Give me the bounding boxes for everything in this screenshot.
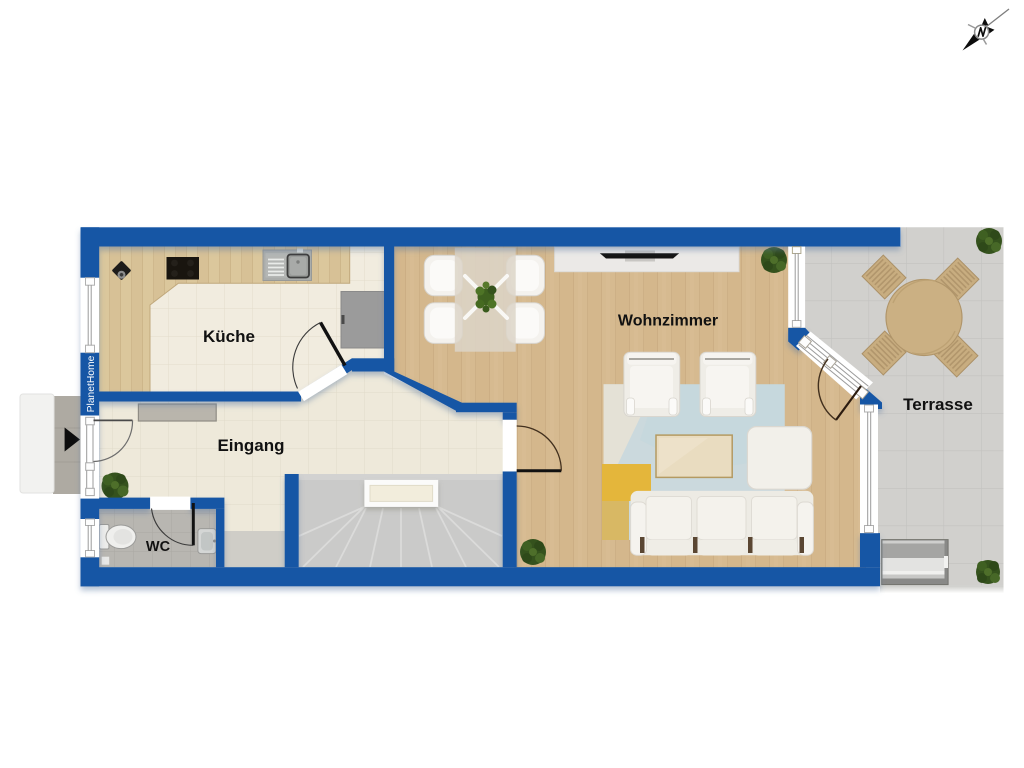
svg-text:PlanetHome: PlanetHome [86,355,97,412]
svg-text:Terrasse: Terrasse [903,395,973,414]
svg-text:WC: WC [146,539,171,555]
svg-text:Küche: Küche [203,327,255,346]
svg-text:Eingang: Eingang [217,436,284,455]
svg-text:Wohnzimmer: Wohnzimmer [618,313,718,330]
